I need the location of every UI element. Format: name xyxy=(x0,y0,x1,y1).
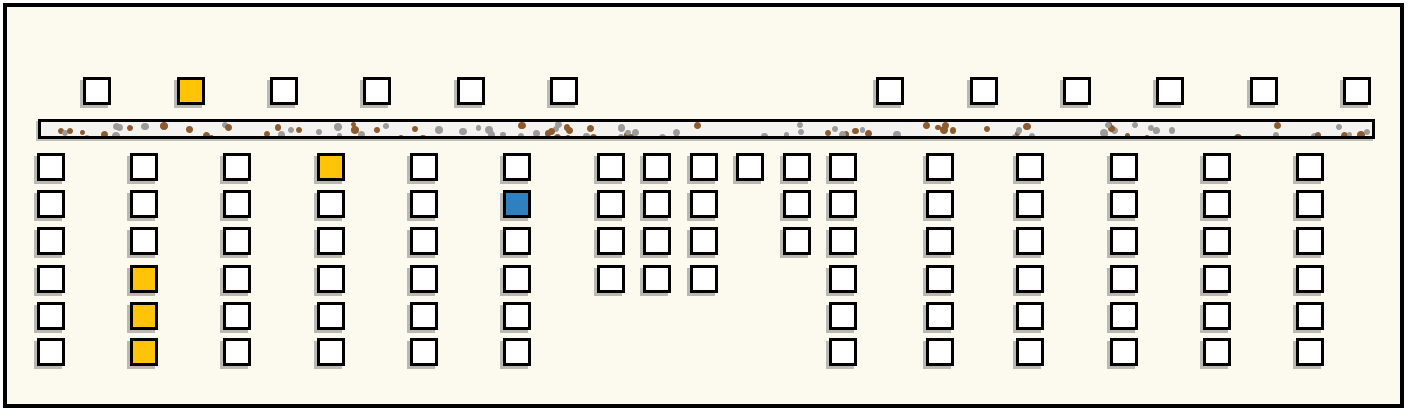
gravel-dot xyxy=(825,130,831,136)
grid-square-col3-row5[interactable] xyxy=(223,302,251,330)
gravel-dot xyxy=(1132,122,1138,128)
gravel-dot xyxy=(1016,127,1022,133)
gravel-dot xyxy=(80,130,85,135)
grid-square-col16-row1[interactable] xyxy=(1203,153,1231,181)
grid-square-col14-row4[interactable] xyxy=(1016,265,1044,293)
gravel-dot xyxy=(1193,138,1198,139)
gravel-dot xyxy=(297,137,304,139)
gravel-dot xyxy=(1336,124,1342,130)
grid-square-col7-row2[interactable] xyxy=(597,190,625,218)
gravel-dot xyxy=(412,126,418,132)
top-square-9[interactable] xyxy=(1063,77,1091,105)
gravel-dot xyxy=(1023,123,1030,130)
gravel-dot xyxy=(869,138,876,139)
grid-square-col7-row1[interactable] xyxy=(597,153,625,181)
grid-square-col17-row2[interactable] xyxy=(1296,190,1324,218)
grid-square-col16-row5[interactable] xyxy=(1203,302,1231,330)
gravel-dot xyxy=(583,133,589,139)
gravel-dot xyxy=(968,137,973,139)
top-square-6[interactable] xyxy=(550,77,578,105)
grid-square-col9-row4[interactable] xyxy=(690,265,718,293)
grid-square-col5-row5[interactable] xyxy=(410,302,438,330)
grid-square-col3-row4[interactable] xyxy=(223,265,251,293)
grid-square-col1-row3[interactable] xyxy=(37,227,65,255)
grid-square-col6-row1[interactable] xyxy=(503,153,531,181)
gravel-dot xyxy=(1274,122,1281,129)
grid-square-col11-row1[interactable] xyxy=(783,153,811,181)
gravel-dot xyxy=(893,131,901,139)
grid-square-col16-row2[interactable] xyxy=(1203,190,1231,218)
gravel-dot xyxy=(692,136,698,139)
top-square-7[interactable] xyxy=(876,77,904,105)
gravel-dot xyxy=(555,121,562,128)
grid-square-col17-row3[interactable] xyxy=(1296,227,1324,255)
gravel-dot xyxy=(288,127,294,133)
grid-square-col15-row2[interactable] xyxy=(1110,190,1138,218)
grid-square-col13-row5[interactable] xyxy=(926,302,954,330)
grid-square-col1-row2[interactable] xyxy=(37,190,65,218)
grid-square-col8-row1[interactable] xyxy=(643,153,671,181)
grid-square-col8-row2[interactable] xyxy=(643,190,671,218)
gravel-dot xyxy=(1105,122,1111,128)
gravel-dot xyxy=(950,127,957,134)
grid-square-col16-row4[interactable] xyxy=(1203,265,1231,293)
gravel-dot xyxy=(84,135,90,139)
grid-square-col6-row5[interactable] xyxy=(503,302,531,330)
top-square-10[interactable] xyxy=(1156,77,1184,105)
grid-square-col13-row3[interactable] xyxy=(926,227,954,255)
grid-square-col4-row1-yellow[interactable] xyxy=(317,153,345,181)
top-square-1[interactable] xyxy=(83,77,111,105)
gravel-dot xyxy=(1347,132,1352,137)
top-square-12[interactable] xyxy=(1343,77,1371,105)
top-square-3[interactable] xyxy=(270,77,298,105)
grid-square-col3-row2[interactable] xyxy=(223,190,251,218)
gravel-dot xyxy=(334,123,341,130)
grid-square-col4-row5[interactable] xyxy=(317,302,345,330)
grid-square-col16-row3[interactable] xyxy=(1203,227,1231,255)
grid-square-col15-row6[interactable] xyxy=(1110,338,1138,366)
gravel-dot xyxy=(203,132,210,139)
grid-square-col9-row1[interactable] xyxy=(690,153,718,181)
grid-square-col10-row1[interactable] xyxy=(736,153,764,181)
grid-square-col2-row6-yellow[interactable] xyxy=(130,338,158,366)
gravel-dot xyxy=(1100,129,1108,137)
grid-square-col13-row6[interactable] xyxy=(926,338,954,366)
grid-square-col2-row5-yellow[interactable] xyxy=(130,302,158,330)
gravel-dot xyxy=(533,130,539,136)
grid-square-col2-row2[interactable] xyxy=(130,190,158,218)
grid-square-col7-row4[interactable] xyxy=(597,265,625,293)
gravel-dot xyxy=(1234,134,1241,139)
grid-square-col12-row5[interactable] xyxy=(829,302,857,330)
gravel-dot xyxy=(264,131,270,137)
gravel-dot xyxy=(603,137,609,139)
gravel-dot xyxy=(784,132,789,137)
gravel-dot xyxy=(427,136,434,139)
grid-square-col17-row5[interactable] xyxy=(1296,302,1324,330)
grid-square-col14-row6[interactable] xyxy=(1016,338,1044,366)
gravel-dot xyxy=(798,129,804,135)
grid-square-col4-row6[interactable] xyxy=(317,338,345,366)
gravel-dot xyxy=(554,134,561,139)
gravel-dot xyxy=(761,133,768,139)
gravel-dot xyxy=(291,136,297,139)
gravel-dot xyxy=(337,133,343,139)
grid-square-col3-row6[interactable] xyxy=(223,338,251,366)
grid-square-col5-row3[interactable] xyxy=(410,227,438,255)
gravel-dot xyxy=(1169,127,1175,133)
grid-square-col17-row1[interactable] xyxy=(1296,153,1324,181)
gravel-dot xyxy=(659,134,666,139)
grid-square-col5-row6[interactable] xyxy=(410,338,438,366)
grid-square-col1-row5[interactable] xyxy=(37,302,65,330)
grid-square-col8-row3[interactable] xyxy=(643,227,671,255)
grid-square-col9-row2[interactable] xyxy=(690,190,718,218)
gravel-dot xyxy=(548,128,555,135)
gravel-dot xyxy=(316,129,322,135)
gravel-dot xyxy=(116,124,123,131)
grid-square-col14-row3[interactable] xyxy=(1016,227,1044,255)
grid-square-col5-row4[interactable] xyxy=(410,265,438,293)
gravel-dot xyxy=(127,125,133,131)
gravel-dot xyxy=(632,129,640,137)
grid-square-col6-row4[interactable] xyxy=(503,265,531,293)
gravel-dot xyxy=(101,131,108,138)
gravel-dot xyxy=(224,136,231,139)
grid-square-col13-row1[interactable] xyxy=(926,153,954,181)
gravel-dot xyxy=(566,127,574,135)
gravel-dot xyxy=(1029,133,1035,139)
gravel-dot xyxy=(923,122,930,129)
gravel-dot xyxy=(225,124,232,131)
gravel-dot xyxy=(682,136,689,139)
gravel-dot xyxy=(518,133,524,139)
gravel-dot xyxy=(625,130,630,135)
gravel-dot xyxy=(186,126,193,133)
grid-square-col13-row2[interactable] xyxy=(926,190,954,218)
gravel-dot xyxy=(230,136,237,139)
gravel-dot xyxy=(278,131,286,139)
gravel-dot xyxy=(476,125,482,131)
gravel-dot xyxy=(296,127,302,133)
grid-square-col3-row1[interactable] xyxy=(223,153,251,181)
grid-square-col2-row3[interactable] xyxy=(130,227,158,255)
top-square-8[interactable] xyxy=(970,77,998,105)
gravel-dot xyxy=(459,128,467,136)
top-square-11[interactable] xyxy=(1250,77,1278,105)
gravel-dot xyxy=(984,126,990,132)
gravel-dot xyxy=(383,123,389,129)
grid-square-col11-row3[interactable] xyxy=(783,227,811,255)
grid-square-col6-row3[interactable] xyxy=(503,227,531,255)
grid-square-col13-row4[interactable] xyxy=(926,265,954,293)
scene xyxy=(0,0,1408,412)
grid-square-col17-row4[interactable] xyxy=(1296,265,1324,293)
grid-square-col14-row5[interactable] xyxy=(1016,302,1044,330)
gravel-dot xyxy=(565,135,571,139)
gravel-dot xyxy=(903,138,909,139)
top-square-2-yellow[interactable] xyxy=(177,77,205,105)
gravel-dot xyxy=(485,126,492,133)
grid-square-col7-row3[interactable] xyxy=(597,227,625,255)
gravel-dot xyxy=(639,138,646,139)
grid-square-col12-row2[interactable] xyxy=(829,190,857,218)
gravel-dot xyxy=(207,138,213,139)
grid-square-col9-row3[interactable] xyxy=(690,227,718,255)
grid-square-col6-row2-blue[interactable] xyxy=(503,190,531,218)
grid-square-col12-row4[interactable] xyxy=(829,265,857,293)
grid-square-col17-row6[interactable] xyxy=(1296,338,1324,366)
gravel-dot xyxy=(1273,132,1280,139)
gravel-dot xyxy=(280,136,286,139)
grid-square-col6-row6[interactable] xyxy=(503,338,531,366)
gravel-dot xyxy=(865,135,871,139)
gravel-dot xyxy=(67,128,73,134)
grid-square-col1-row4[interactable] xyxy=(37,265,65,293)
gravel-dot xyxy=(839,131,846,138)
gravel-dot xyxy=(590,134,598,139)
top-square-5[interactable] xyxy=(457,77,485,105)
gravel-dot xyxy=(419,135,426,139)
gravel-dot xyxy=(1078,137,1084,139)
grid-square-col15-row4[interactable] xyxy=(1110,265,1138,293)
gravel-dot xyxy=(942,122,949,129)
grid-square-col3-row3[interactable] xyxy=(223,227,251,255)
gravel-dot xyxy=(141,123,148,130)
gravel-dot xyxy=(270,138,277,139)
grid-square-col8-row4[interactable] xyxy=(643,265,671,293)
grid-square-col4-row3[interactable] xyxy=(317,227,345,255)
gravel-dot xyxy=(374,127,380,133)
gravel-dot xyxy=(1364,129,1370,135)
grid-square-col15-row1[interactable] xyxy=(1110,153,1138,181)
grid-square-col11-row2[interactable] xyxy=(783,190,811,218)
grid-square-col12-row6[interactable] xyxy=(829,338,857,366)
gravel-dot xyxy=(694,122,701,129)
gravel-dot xyxy=(68,137,75,140)
grid-square-col1-row6[interactable] xyxy=(37,338,65,366)
gravel-dot xyxy=(358,131,365,138)
gravel-road xyxy=(38,119,1375,139)
gravel-dot xyxy=(832,126,838,132)
gravel-dot xyxy=(852,128,858,134)
grid-square-col15-row3[interactable] xyxy=(1110,227,1138,255)
grid-square-col14-row2[interactable] xyxy=(1016,190,1044,218)
gravel-dot xyxy=(112,132,120,139)
grid-square-col12-row1[interactable] xyxy=(829,153,857,181)
gravel-dot xyxy=(618,124,626,132)
grid-square-col14-row1[interactable] xyxy=(1016,153,1044,181)
grid-square-col2-row1[interactable] xyxy=(130,153,158,181)
grid-square-col4-row4[interactable] xyxy=(317,265,345,293)
grid-square-col5-row2[interactable] xyxy=(410,190,438,218)
top-square-4[interactable] xyxy=(363,77,391,105)
gravel-dot xyxy=(1311,136,1317,139)
grid-square-col2-row4-yellow[interactable] xyxy=(130,265,158,293)
gravel-dot xyxy=(73,136,79,139)
gravel-dot xyxy=(632,136,639,139)
diagram-viewport xyxy=(0,0,1408,412)
gravel-dot xyxy=(587,125,594,132)
grid-square-col5-row1[interactable] xyxy=(410,153,438,181)
gravel-dot xyxy=(500,132,506,138)
gravel-dot xyxy=(435,126,442,133)
grid-square-col15-row5[interactable] xyxy=(1110,302,1138,330)
gravel-dot xyxy=(673,129,680,136)
gravel-dot xyxy=(661,136,667,139)
gravel-dot xyxy=(160,122,167,129)
gravel-dot xyxy=(1125,133,1131,139)
gravel-dot xyxy=(618,134,624,139)
gravel-dot xyxy=(1144,135,1150,139)
gravel-dot xyxy=(498,138,504,139)
grid-square-col4-row2[interactable] xyxy=(317,190,345,218)
gravel-dot xyxy=(398,135,404,139)
grid-square-col1-row1[interactable] xyxy=(37,153,65,181)
gravel-dot xyxy=(518,122,526,130)
gravel-dot xyxy=(708,137,714,139)
grid-square-col16-row6[interactable] xyxy=(1203,338,1231,366)
grid-square-col12-row3[interactable] xyxy=(829,227,857,255)
gravel-dot xyxy=(797,122,804,129)
